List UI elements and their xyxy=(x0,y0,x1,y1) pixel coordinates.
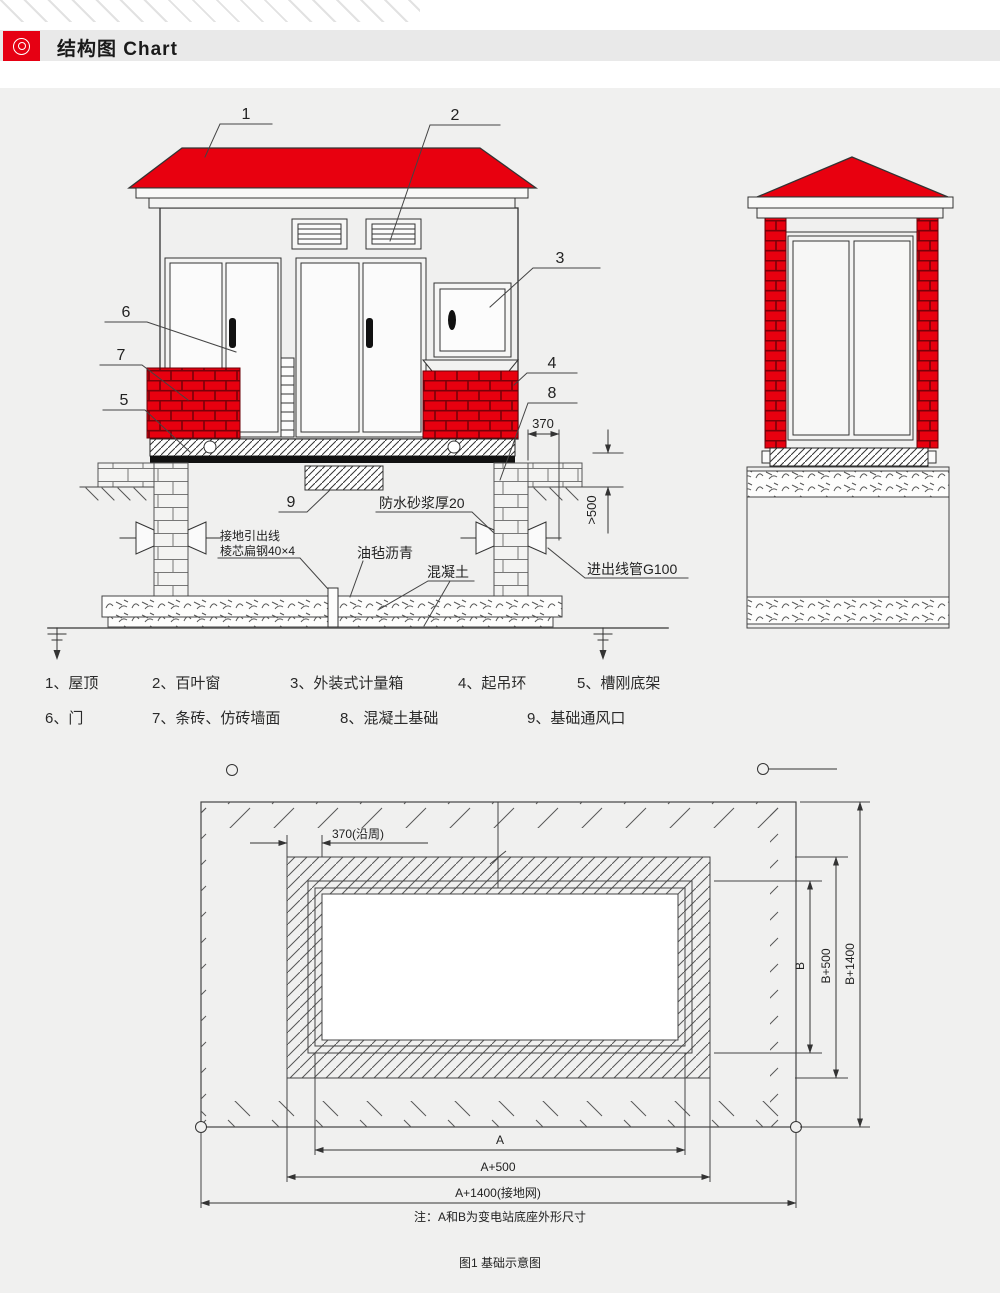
callout-7: 7 xyxy=(117,347,126,364)
legend-item: 1、屋顶 xyxy=(45,672,98,693)
side-elevation xyxy=(747,157,953,628)
page: 结构图 Chart xyxy=(0,0,1000,1293)
front-elevation: 1 2 3 4 5 6 7 8 9 防水砂浆厚20 接地引出线 棱芯扁钢40×4… xyxy=(48,106,688,660)
callout-4: 4 xyxy=(548,355,557,372)
structure-drawing: 1 2 3 4 5 6 7 8 9 防水砂浆厚20 接地引出线 棱芯扁钢40×4… xyxy=(0,0,1000,1293)
svg-text:370: 370 xyxy=(532,416,554,431)
legend-item: 5、槽刚底架 xyxy=(577,672,660,693)
callout-9: 9 xyxy=(287,494,296,511)
dim-label-b500: B+500 xyxy=(819,948,833,983)
legend-item: 4、起吊环 xyxy=(458,672,526,693)
svg-text:>500: >500 xyxy=(584,495,599,524)
brick-wall-left xyxy=(147,368,240,438)
callout-2: 2 xyxy=(451,107,460,124)
side-brick-column-right xyxy=(917,218,938,448)
roof xyxy=(129,148,536,188)
side-roof xyxy=(757,157,948,197)
label-asphalt-felt: 油毡沥青 xyxy=(357,545,413,561)
ground-ledge-left xyxy=(80,463,154,500)
callout-3: 3 xyxy=(556,250,565,267)
label-conduit: 进出线管G100 xyxy=(587,561,677,577)
plan-marker-circle xyxy=(758,764,769,775)
svg-text:370(沿周): 370(沿周) xyxy=(332,827,384,841)
callout-5: 5 xyxy=(120,392,129,409)
legend-item: 7、条砖、仿砖墙面 xyxy=(152,707,280,728)
figure-caption: 图1 基础示意图 xyxy=(0,1254,1000,1271)
label-concrete: 混凝土 xyxy=(427,564,469,580)
dim-label-a500: A+500 xyxy=(480,1160,515,1174)
label-grounding-line1: 接地引出线 xyxy=(220,528,280,543)
plan-note: 注：A和B为变电站底座外形尺寸 xyxy=(414,1209,586,1224)
louver-vent-left xyxy=(292,219,347,249)
base-frame xyxy=(150,439,515,463)
side-brick-column-left xyxy=(765,218,786,448)
metering-box xyxy=(434,283,511,357)
label-waterproof-mortar: 防水砂浆厚20 xyxy=(379,495,465,511)
base-interior xyxy=(322,894,678,1040)
door-handle xyxy=(229,318,236,348)
side-door-panel xyxy=(793,241,849,435)
grounding-rod xyxy=(328,588,338,627)
ground-anchor-left xyxy=(48,628,66,660)
dim-label-a1400: A+1400(接地网) xyxy=(455,1185,541,1200)
foundation-plan: 370(沿周) B B+500 B+1400 xyxy=(196,764,871,1225)
callout-8: 8 xyxy=(548,385,557,402)
roof-band xyxy=(149,198,515,208)
legend-item: 3、外装式计量箱 xyxy=(290,672,403,693)
box-handle xyxy=(448,310,456,330)
callout-6: 6 xyxy=(122,304,131,321)
door-handle xyxy=(366,318,373,348)
ladder xyxy=(281,358,294,437)
foundation-vent xyxy=(305,466,383,490)
legend-item: 6、门 xyxy=(45,707,83,728)
callout-1: 1 xyxy=(242,106,251,123)
ground-ledge-right xyxy=(528,463,602,500)
legend-item: 9、基础通风口 xyxy=(527,707,625,728)
side-base-frame xyxy=(762,448,936,466)
side-door-panel xyxy=(854,241,910,435)
pier-left xyxy=(154,463,188,603)
label-grounding-line2: 棱芯扁钢40×4 xyxy=(220,543,295,558)
brick-wall-right xyxy=(423,371,518,438)
ground-anchor-right xyxy=(594,628,612,660)
louver-vent-right xyxy=(366,219,421,249)
roof-fascia xyxy=(136,188,528,198)
lifting-ring-area xyxy=(423,360,518,371)
plan-dim-370: 370(沿周) xyxy=(250,827,428,857)
legend-item: 8、混凝土基础 xyxy=(340,707,438,728)
plan-marker-circle xyxy=(227,765,238,776)
side-roof-fascia xyxy=(748,197,953,208)
side-foundation xyxy=(747,467,949,628)
plan-marker-circle xyxy=(791,1122,802,1133)
pier-right xyxy=(494,463,528,603)
dim-label-b1400: B+1400 xyxy=(843,943,857,985)
plan-marker-circle xyxy=(196,1122,207,1133)
door-center xyxy=(296,258,426,437)
dim-label-b: B xyxy=(793,962,807,970)
dim-gt500: >500 xyxy=(584,430,623,533)
dim-label-a: A xyxy=(496,1133,504,1147)
side-roof-band xyxy=(757,208,943,218)
legend-item: 2、百叶窗 xyxy=(152,672,220,693)
